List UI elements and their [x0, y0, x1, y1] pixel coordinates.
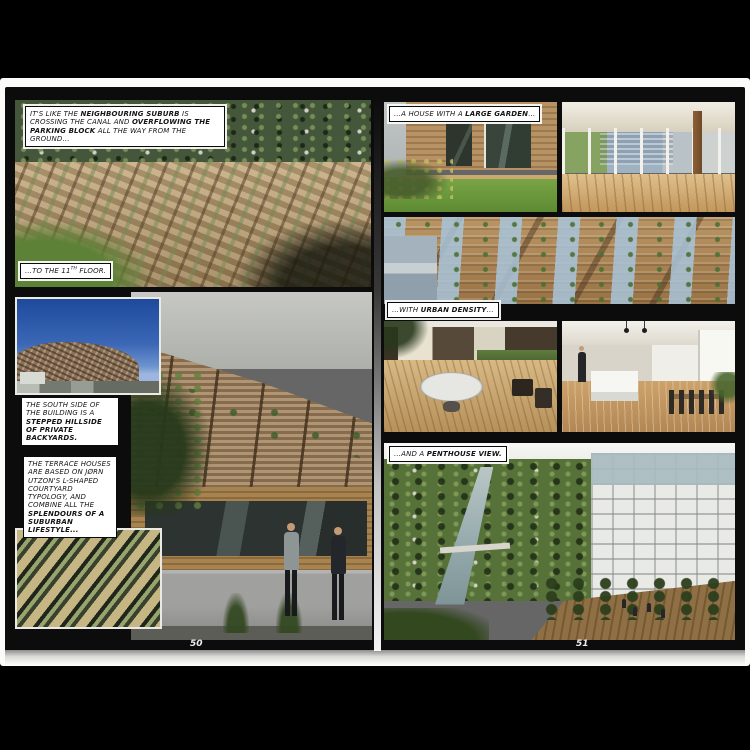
person-legs [285, 570, 297, 616]
photo-facade-density [384, 217, 735, 304]
person-silhouette [661, 609, 665, 618]
table-base [443, 401, 460, 412]
book-spread-viewer: IT'S LIKE THE NEIGHBOURING SUBURB IS CRO… [0, 0, 750, 750]
page-bottom-edge [5, 650, 745, 666]
page-number-left: 50 [190, 639, 203, 649]
photo-covered-terrace [562, 102, 735, 212]
person-silhouette [327, 527, 349, 620]
terrace-shrubs [538, 577, 721, 620]
person-silhouette [633, 607, 637, 616]
wood-deck-layer [562, 174, 735, 213]
foliage-layer [384, 157, 453, 199]
house-plant [709, 372, 735, 405]
path-layer [131, 626, 372, 640]
caption-penthouse-view: ...AND A PENTHOUSE VIEW. [389, 446, 507, 462]
photo-blue-sky-mountain [15, 297, 161, 395]
page-number-right: 51 [576, 639, 589, 649]
photo-kitchen-interior [562, 321, 735, 432]
person-silhouette [578, 352, 586, 382]
plant-tuft [223, 593, 249, 633]
caption-south-side: THE SOUTH SIDE OF THE BUILDING IS A STEP… [21, 397, 119, 446]
grey-end-wall [384, 236, 437, 304]
person-head [287, 523, 295, 531]
caption-urban-density: ...WITH URBAN DENSITY... [387, 302, 499, 318]
white-building [20, 372, 46, 383]
person-silhouette [622, 599, 626, 608]
caption-eleventh-floor: ...TO THE 11TH FLOOR. [20, 263, 111, 279]
pendant-lamp [624, 328, 629, 333]
person-legs [332, 574, 344, 620]
person-body [284, 532, 299, 570]
glass-mullions [562, 128, 735, 176]
caption-large-garden: ...A HOUSE WITH A LARGE GARDEN... [389, 106, 540, 122]
person-body [331, 536, 346, 574]
person-silhouette [280, 523, 302, 616]
green-bank [384, 608, 489, 640]
person-silhouette [647, 603, 651, 612]
photo-deck-round-table [384, 321, 557, 432]
chair [535, 388, 552, 408]
spine-gutter-highlight [374, 95, 381, 651]
chair [512, 379, 533, 397]
kitchen-island [591, 371, 638, 401]
ceiling-layer [562, 102, 735, 132]
caption-terrace-houses: THE TERRACE HOUSES ARE BASED ON JØRN UTZ… [23, 456, 117, 538]
photo-terrace-model [15, 528, 162, 629]
shadow-layer [232, 218, 371, 287]
wood-post [693, 111, 702, 179]
pendant-lamp [642, 328, 647, 333]
foliage-corner [384, 321, 429, 359]
person-head [334, 527, 342, 535]
photo-stepped-hillside [131, 292, 372, 640]
caption-overflow: IT'S LIKE THE NEIGHBOURING SUBURB IS CRO… [25, 106, 225, 147]
photo-penthouse-outlook [384, 443, 735, 640]
